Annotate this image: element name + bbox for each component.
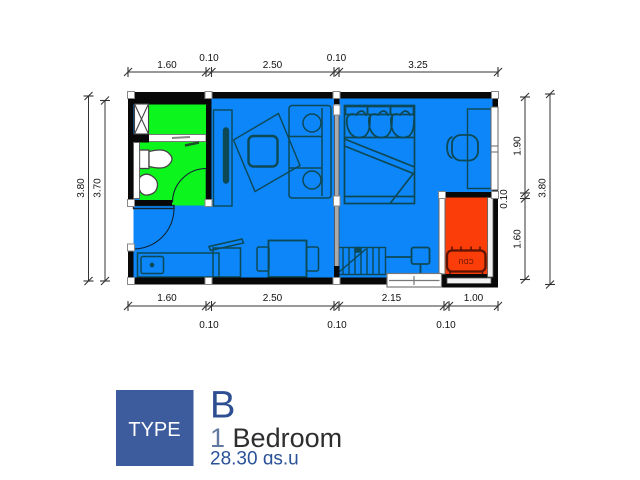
- svg-text:1.90: 1.90: [513, 136, 524, 156]
- svg-text:2.50: 2.50: [263, 293, 283, 304]
- svg-text:1.60: 1.60: [157, 293, 177, 304]
- svg-text:0.10: 0.10: [499, 189, 510, 209]
- svg-text:1.60: 1.60: [513, 229, 524, 249]
- svg-text:CDU: CDU: [458, 257, 473, 264]
- svg-text:3.80: 3.80: [76, 178, 87, 198]
- svg-text:1.00: 1.00: [464, 293, 484, 304]
- svg-text:3.80: 3.80: [538, 178, 549, 198]
- svg-text:0.10: 0.10: [327, 320, 347, 331]
- svg-text:0.10: 0.10: [199, 53, 219, 64]
- svg-text:0.10: 0.10: [327, 53, 347, 64]
- svg-text:2.50: 2.50: [263, 60, 283, 71]
- svg-text:B: B: [210, 385, 235, 427]
- svg-text:3.70: 3.70: [93, 178, 104, 198]
- svg-text:28.30 ɑs.u: 28.30 ɑs.u: [210, 449, 299, 470]
- svg-text:3.25: 3.25: [408, 60, 428, 71]
- svg-text:1.60: 1.60: [157, 60, 177, 71]
- svg-text:2.15: 2.15: [382, 293, 402, 304]
- svg-text:0.10: 0.10: [436, 320, 456, 331]
- svg-text:0.10: 0.10: [199, 320, 219, 331]
- svg-text:TYPE: TYPE: [128, 419, 180, 441]
